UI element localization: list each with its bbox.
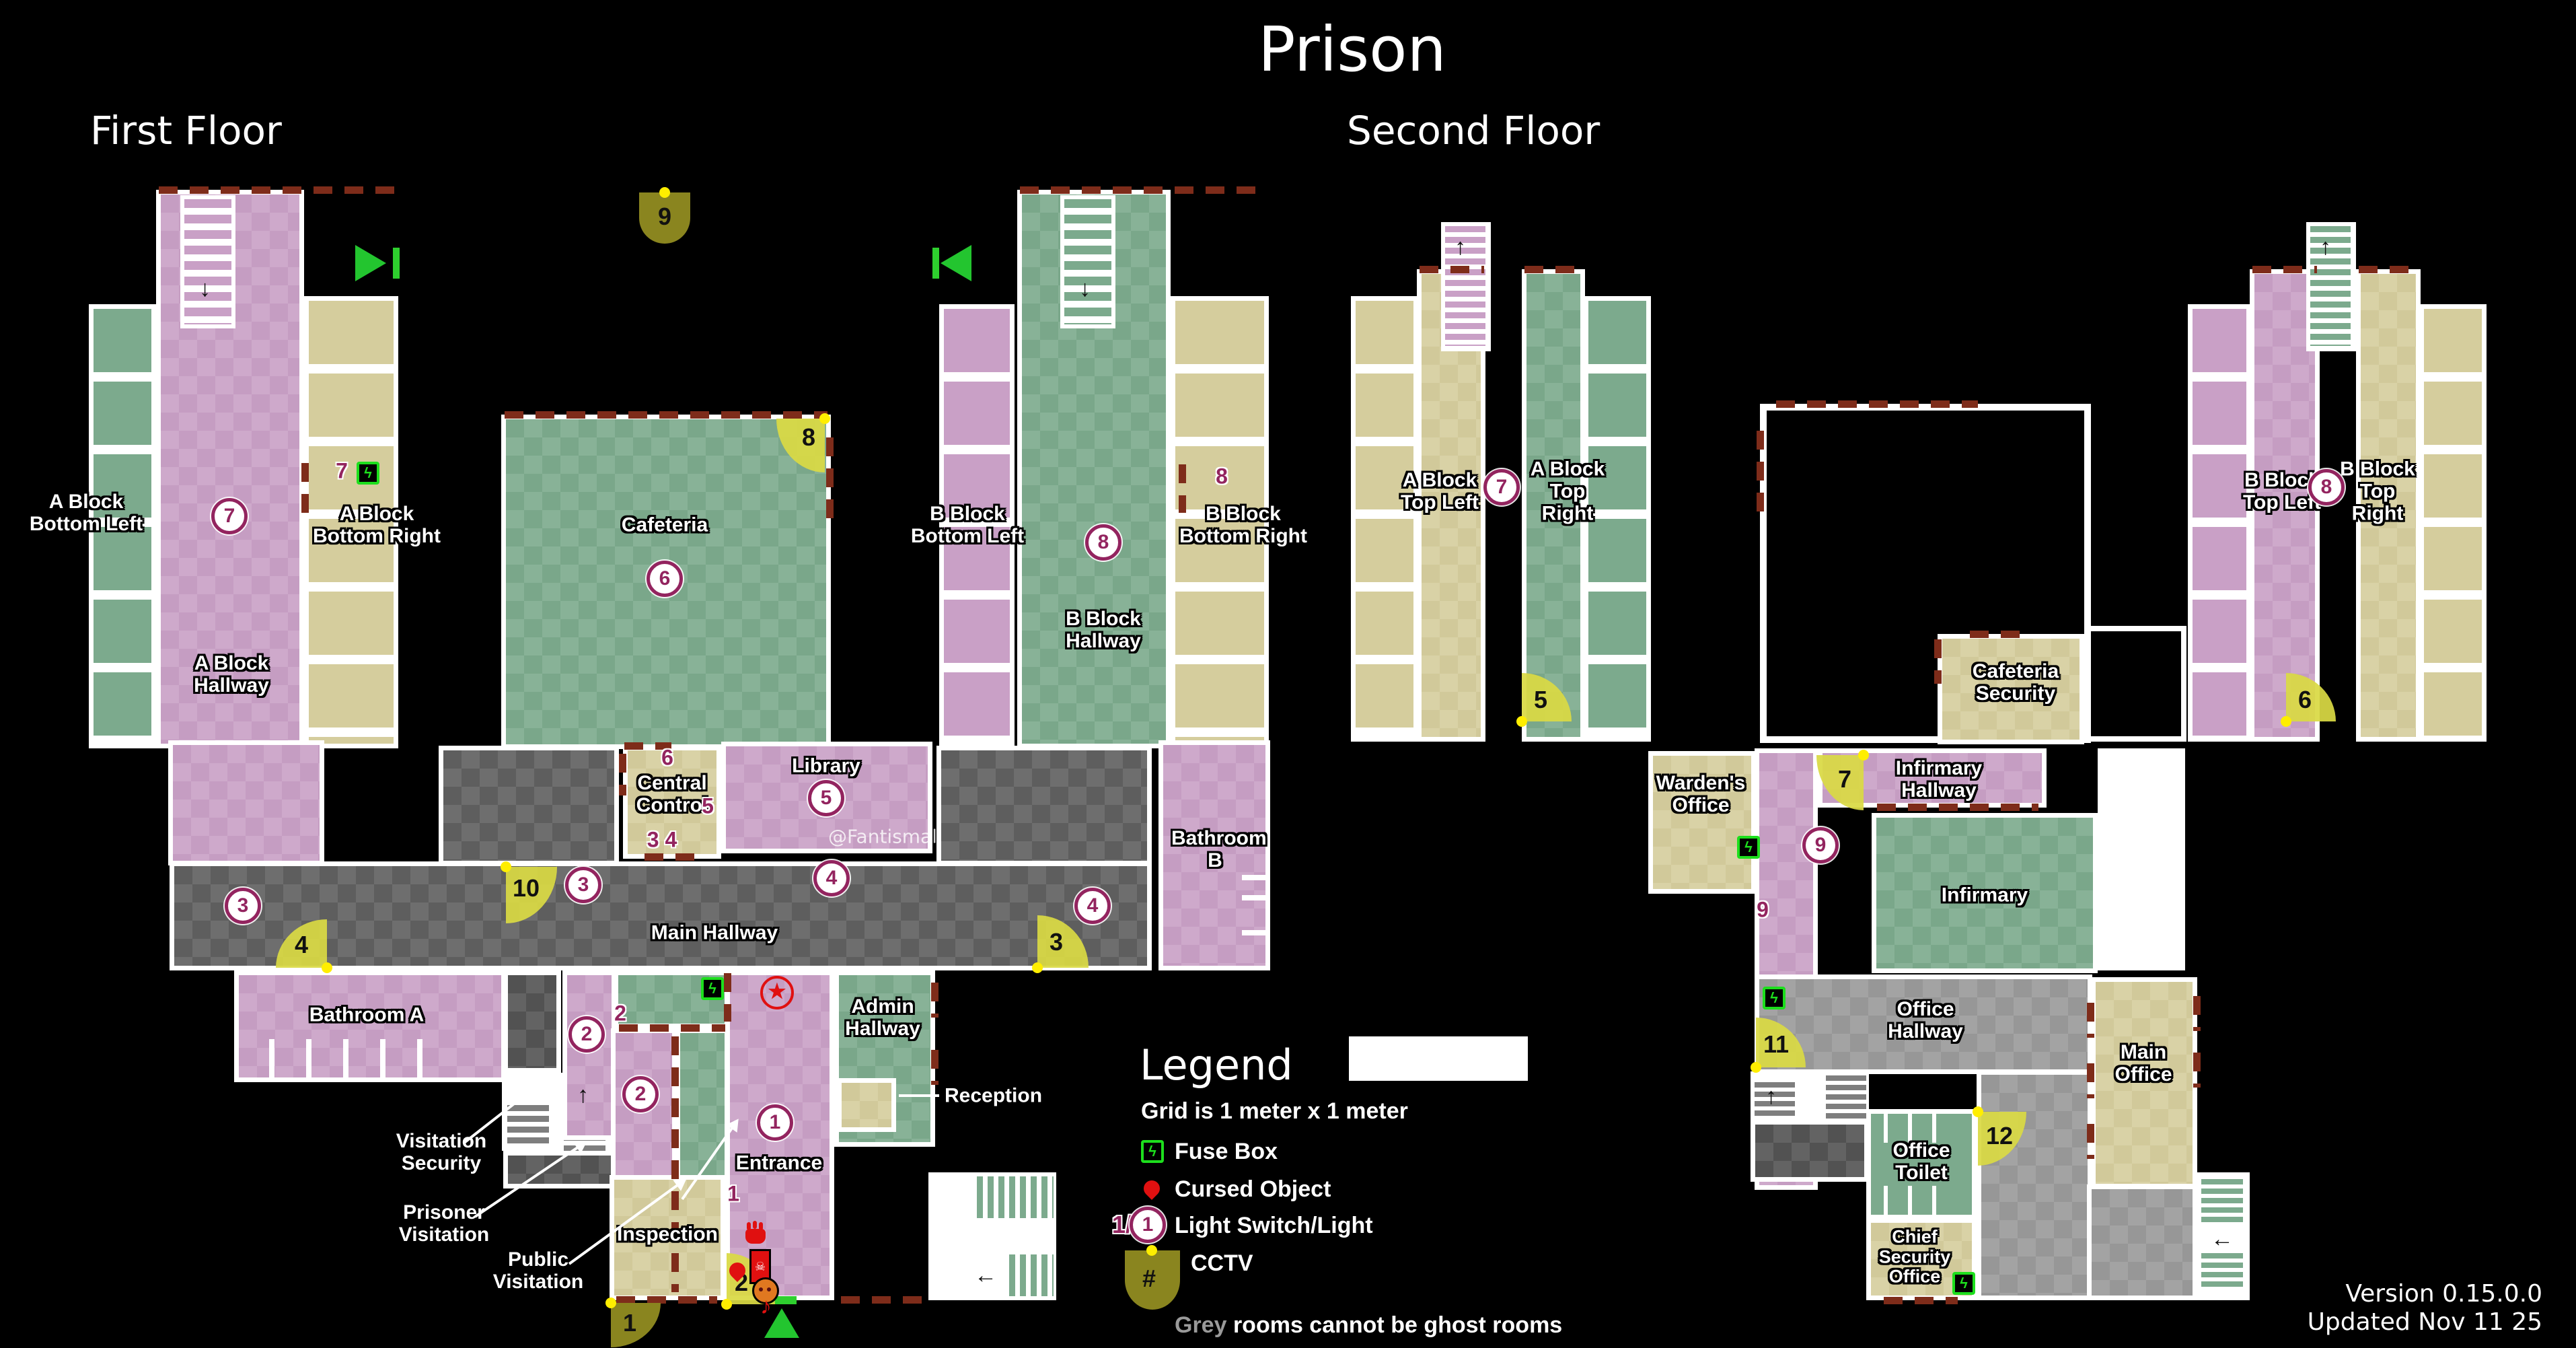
admin-bottom-red-wall — [841, 1296, 922, 1304]
bathroom-a-stall — [417, 1039, 422, 1079]
light-switch-2: 2 — [614, 1001, 626, 1026]
chief-security-red-wall — [1884, 1297, 1958, 1304]
fuse-box-sf-hallway: ϟ — [1763, 987, 1786, 1009]
legend-cctv-hash: # — [1142, 1265, 1156, 1293]
bathroom-b-stall — [1242, 875, 1269, 880]
exit-door-b-block — [932, 248, 939, 279]
a-block-top-red-wall — [159, 186, 394, 194]
label-b-block-bottom-left: B Block Bottom Left — [900, 503, 1035, 547]
label-cafeteria: Cafeteria — [622, 514, 708, 536]
label-infirmary-hallway: Infirmary Hallway — [1882, 757, 1996, 802]
sf-se-stairs-bottom — [2201, 1253, 2243, 1287]
camera-6-dot — [2281, 716, 2291, 727]
light-4-main-hallway-east: 4 — [1074, 888, 1111, 924]
sf-west-stairs-up-arrow: ↑ — [1765, 1084, 1777, 1110]
fuse-box-visitation: ϟ — [701, 977, 724, 1000]
label-office-toilet: Office Toilet — [1881, 1139, 1962, 1184]
light-3-main-hallway-west: 3 — [225, 888, 261, 924]
room-office-hallway-east — [2087, 1184, 2197, 1300]
ff-se-stairs-top — [977, 1176, 1054, 1218]
room-visitation-security — [503, 970, 561, 1073]
light-3-main-hallway-mid: 3 — [565, 867, 601, 903]
room-hallway-east-segment — [936, 746, 1152, 865]
label-infirmary: Infirmary — [1942, 884, 2028, 907]
admin-red-wall-1 — [931, 983, 939, 1018]
cafeteria-security-red-wall-left — [1934, 639, 1942, 684]
label-public-visitation: Public Visitation — [484, 1248, 592, 1293]
label-b-block-bottom-right: B Block Bottom Right — [1173, 503, 1314, 547]
label-a-block-bottom-left: A Block Bottom Left — [19, 491, 153, 535]
sf-se-stairs-top — [2201, 1179, 2243, 1222]
visitation-red-wall-right — [724, 973, 731, 1022]
label-office-hallway: Office Hallway — [1878, 998, 1973, 1042]
page-title: Prison — [1258, 13, 1446, 85]
legend-cctv-label: CCTV — [1191, 1250, 1253, 1277]
office-toilet-stall — [1884, 1113, 1888, 1143]
closed-room-ne — [2086, 626, 2186, 742]
light-switch-7: 7 — [336, 459, 348, 484]
exit-arrow-b-block — [941, 245, 971, 281]
camera-7-dot — [1858, 750, 1869, 760]
monkey-paw-icon — [745, 1229, 766, 1244]
camera-3-dot — [1032, 962, 1043, 973]
a-block-stairs-down-arrow: ↓ — [199, 276, 211, 302]
bathroom-a-stall — [269, 1039, 274, 1079]
a-top-red-wall-2 — [1524, 266, 1582, 273]
legend-cursed-icon — [1140, 1177, 1163, 1200]
office-toilet-stall — [1884, 1186, 1888, 1215]
camera-12-number: 12 — [1986, 1122, 2013, 1150]
camera-6-number: 6 — [2298, 686, 2312, 714]
light-1-entrance: 1 — [757, 1104, 793, 1141]
admin-red-wall-2 — [931, 1050, 939, 1085]
camera-1-dot — [605, 1298, 616, 1308]
light-6-cafeteria: 6 — [647, 561, 683, 597]
sf-west-stairs-right — [1826, 1075, 1866, 1119]
light-switch-8: 8 — [1216, 464, 1228, 489]
light-9-infirmary-hallway: 9 — [1802, 827, 1839, 863]
light-switch-1: 1 — [727, 1182, 739, 1207]
office-toilet-stall — [1932, 1186, 1936, 1215]
cafeteria-right-red-wall — [826, 437, 834, 525]
sf-white-terrace — [2098, 748, 2185, 970]
label-inspection: Inspection — [617, 1223, 718, 1246]
bathroom-b-stall — [1242, 930, 1269, 935]
label-a-block-hallway: A Block Hallway — [178, 652, 285, 697]
main-office-red-wall-l2 — [2087, 1063, 2094, 1098]
label-central-control: Central Control — [632, 772, 712, 816]
b-top-red-wall-2 — [2359, 266, 2418, 273]
version-line1: Version 0.15.0.0 — [2345, 1280, 2542, 1308]
bathroom-b-stall — [1242, 895, 1269, 900]
legend-cctv-dot — [1146, 1245, 1157, 1256]
light-switch-5: 5 — [702, 794, 714, 819]
fuse-box-a-block: ϟ — [357, 462, 379, 485]
label-chief-security-office: Chief Security Office — [1871, 1227, 1958, 1287]
label-cafeteria-security: Cafeteria Security — [1962, 660, 2069, 705]
first-floor-heading: First Floor — [90, 108, 282, 153]
camera-8-dot — [819, 413, 830, 424]
label-a-block-bottom-right: A Block Bottom Right — [306, 503, 447, 547]
legend-heading: Legend — [1140, 1040, 1293, 1090]
label-a-block-top-left: A Block Top Left — [1396, 469, 1483, 513]
main-office-red-wall-r1 — [2193, 996, 2201, 1031]
camera-1-number: 1 — [623, 1309, 636, 1337]
b-block-stairs-down-arrow: ↓ — [1079, 276, 1091, 302]
second-floor-heading: Second Floor — [1347, 108, 1600, 153]
watermark: @Fantismal — [828, 827, 937, 848]
legend-grey-note: Grey rooms cannot be ghost rooms — [1175, 1312, 1562, 1339]
main-office-red-wall-l1 — [2087, 1003, 2094, 1038]
main-office-red-wall-l3 — [2087, 1124, 2094, 1159]
label-main-office: Main Office — [2106, 1041, 2180, 1086]
room-reception-nook — [837, 1078, 896, 1132]
camera-3-number: 3 — [1050, 928, 1063, 956]
light-2-prisoner-visitation: 2 — [568, 1016, 605, 1053]
ff-se-stairs-left-arrow: ← — [974, 1263, 997, 1289]
visitation-red-wall-bottom — [619, 1024, 725, 1032]
ff-se-stairs-bottom — [1009, 1254, 1054, 1296]
room-hallway-west-of-central-control — [439, 746, 619, 865]
exit-door-a-block — [393, 248, 400, 279]
light-switch-9: 9 — [1757, 898, 1769, 923]
summoning-circle-icon: ★ — [760, 976, 794, 1009]
a-block-stairs — [180, 195, 235, 328]
room-below-visitation-stairs — [503, 1151, 616, 1189]
infirmary-hallway-red-wall — [1877, 804, 2038, 811]
b-top-stairs-up-arrow: ↑ — [2320, 234, 2331, 260]
visitation-stairs-up-arrow: ↑ — [577, 1082, 589, 1108]
camera-9-dot — [659, 187, 670, 198]
camera-4-dot — [322, 962, 332, 973]
visitation-red-wall-mid — [671, 1036, 679, 1292]
label-wardens-office: Warden's Office — [1650, 772, 1751, 816]
cafeteria-security-red-wall-top — [1970, 631, 2030, 638]
light-switch-6: 6 — [661, 746, 673, 771]
label-b-block-hallway: B Block Hallway — [1050, 608, 1157, 652]
label-bathroom-b: Bathroom B — [1171, 827, 1259, 872]
camera-10-dot — [501, 861, 511, 872]
camera-11-number: 11 — [1763, 1030, 1789, 1059]
b-block-top-red-wall — [1020, 186, 1262, 194]
label-a-block-top-right: A Block Top Right — [1524, 458, 1611, 525]
light-7-a-top: 7 — [1483, 469, 1520, 505]
a-top-left-cells — [1351, 296, 1418, 742]
light-switch-3-4: 3 4 — [647, 828, 677, 853]
room-prisoner-visitation — [562, 970, 616, 1140]
b-top-left-cells — [2188, 304, 2251, 742]
a-top-stairs-up-arrow: ↑ — [1455, 234, 1466, 260]
cafeteria-top-red-wall — [505, 411, 827, 419]
exit-arrow-a-block — [355, 245, 386, 281]
sf-se-stairs-left-arrow: ← — [2211, 1226, 2234, 1252]
camera-7-number: 7 — [1838, 765, 1851, 793]
white-block — [1349, 1036, 1528, 1081]
legend-fuse-icon: ϟ — [1141, 1140, 1164, 1163]
camera-5-dot — [1516, 716, 1527, 727]
fuse-box-chief-security: ϟ — [1952, 1272, 1975, 1295]
office-toilet-stall — [1908, 1113, 1912, 1143]
light-7-a-block: 7 — [211, 498, 248, 534]
room-bathroom-a — [234, 970, 506, 1082]
closed-area-red-wall-left — [1757, 431, 1764, 511]
central-control-left-red-wall — [619, 754, 626, 795]
bathroom-a-stall — [306, 1039, 311, 1079]
room-main-hallway-north-wing — [168, 740, 324, 865]
office-toilet-stall — [1908, 1186, 1912, 1215]
version-line2: Updated Nov 11 25 — [2308, 1308, 2542, 1336]
legend-cursed-label: Cursed Object — [1175, 1176, 1331, 1203]
label-main-hallway: Main Hallway — [651, 922, 778, 944]
office-toilet-stall — [1932, 1113, 1936, 1143]
label-admin-hallway: Admin Hallway — [842, 995, 923, 1040]
legend-grey-rest: rooms cannot be ghost rooms — [1227, 1312, 1563, 1338]
b-top-red-wall-1 — [2252, 266, 2317, 273]
legend-light-sample: 1 — [1130, 1207, 1166, 1243]
label-library: Library — [792, 755, 860, 777]
central-control-bottom-red-wall — [645, 853, 702, 861]
camera-8-number: 8 — [802, 423, 815, 452]
reception-pointer — [899, 1094, 939, 1097]
room-below-sf-west-stairs — [1751, 1120, 1869, 1182]
camera-9-number: 9 — [658, 203, 671, 231]
main-office-red-wall-r2 — [2193, 1053, 2201, 1088]
legend-fuse-label: Fuse Box — [1175, 1139, 1278, 1165]
light-2-public-visitation: 2 — [622, 1076, 659, 1112]
a-top-red-wall-1 — [1420, 266, 1484, 273]
light-4-main-hallway-mid: 4 — [813, 860, 850, 896]
label-bathroom-a: Bathroom A — [309, 1004, 425, 1026]
room-office-hallway-mid — [1977, 1070, 2092, 1300]
camera-12-dot — [1973, 1106, 1983, 1117]
light-5-library: 5 — [808, 780, 844, 816]
b-top-right-cells — [2419, 304, 2487, 742]
tarot-skull: ☠ — [755, 1260, 766, 1273]
entrance-arrow — [764, 1308, 799, 1338]
camera-10-number: 10 — [513, 874, 540, 902]
b-block-stairs — [1060, 195, 1115, 328]
prison-map: Prison First Floor Second Floor ↓ 7 ϟ 7 … — [0, 0, 2576, 1348]
light-8-b-block: 8 — [1085, 524, 1121, 561]
label-visitation-security: Visitation Security — [381, 1130, 502, 1174]
label-entrance: Entrance — [736, 1152, 822, 1174]
legend-grey-word: Grey — [1175, 1312, 1227, 1338]
visitation-stairs-left — [507, 1105, 549, 1145]
legend-light-label: Light Switch/Light — [1175, 1213, 1373, 1239]
label-b-block-top-right: B Block Top Right — [2334, 458, 2421, 525]
label-reception: Reception — [945, 1085, 1042, 1107]
bathroom-a-stall — [380, 1039, 385, 1079]
camera-11-dot — [1751, 1062, 1761, 1073]
camera-2-dot — [721, 1299, 732, 1310]
camera-5-number: 5 — [1534, 686, 1547, 714]
legend-grid-note: Grid is 1 meter x 1 meter — [1141, 1098, 1408, 1125]
camera-4-number: 4 — [295, 931, 308, 959]
bathroom-a-stall — [343, 1039, 348, 1079]
light-8-b-top: 8 — [2308, 469, 2345, 505]
closed-area-red-wall-top — [1776, 400, 1978, 408]
fuse-box-wardens: ϟ — [1737, 836, 1760, 859]
